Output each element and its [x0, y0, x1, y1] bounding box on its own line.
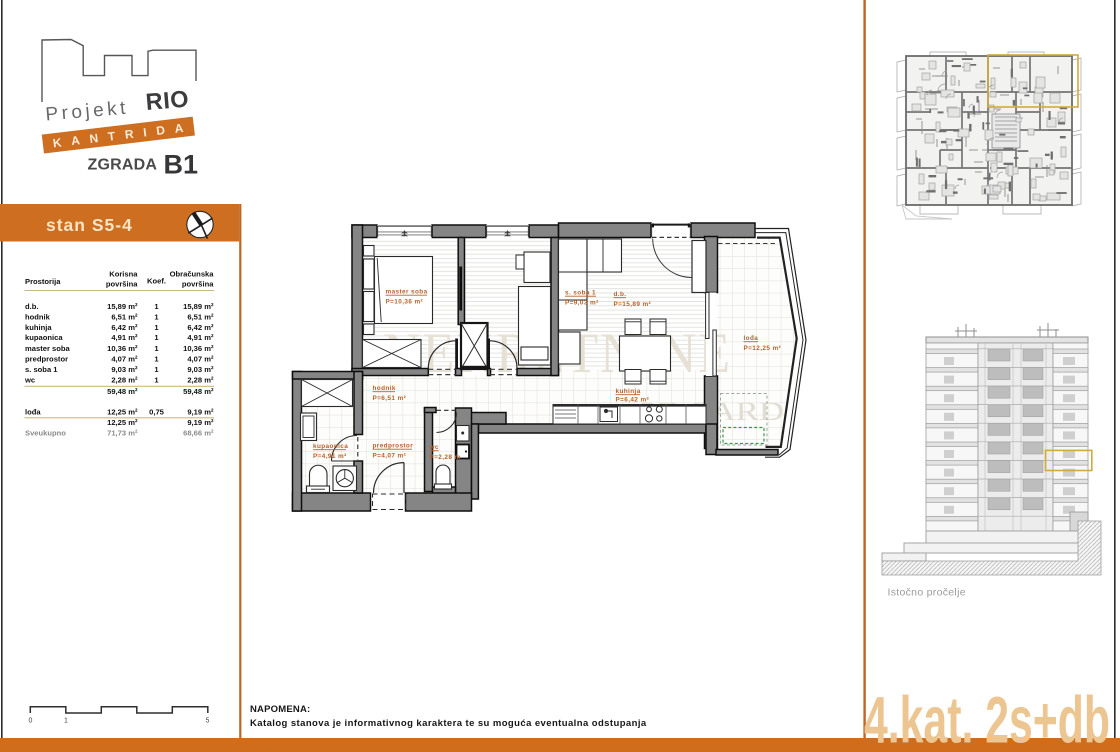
svg-text:predprostor: predprostor [25, 355, 68, 364]
svg-text:B1: B1 [164, 150, 199, 180]
svg-text:6,42 m²: 6,42 m² [111, 323, 138, 332]
svg-text:P=4,91 m²: P=4,91 m² [313, 453, 347, 460]
svg-text:59,48 m²: 59,48 m² [183, 387, 214, 396]
svg-text:Prostorija: Prostorija [25, 277, 61, 286]
svg-text:P=6,42 m²: P=6,42 m² [616, 397, 650, 404]
svg-text:lođa: lođa [25, 407, 41, 416]
svg-text:4,91 m²: 4,91 m² [111, 333, 138, 342]
svg-text:površina: površina [106, 280, 138, 289]
svg-text:master soba: master soba [386, 289, 428, 296]
svg-text:4,07 m²: 4,07 m² [111, 355, 138, 364]
svg-text:5: 5 [206, 718, 210, 725]
svg-text:10,36 m²: 10,36 m² [107, 344, 138, 353]
svg-text:2,28 m²: 2,28 m² [111, 376, 138, 385]
svg-text:12,25 m²: 12,25 m² [107, 418, 138, 427]
svg-text:12,25 m²: 12,25 m² [107, 407, 138, 416]
svg-text:9,19 m²: 9,19 m² [187, 407, 214, 416]
svg-text:hodnik: hodnik [373, 385, 396, 392]
svg-text:stan S5-4: stan S5-4 [46, 215, 133, 235]
svg-text:15,89 m²: 15,89 m² [183, 302, 214, 311]
svg-text:1: 1 [154, 312, 159, 321]
svg-text:4,91 m²: 4,91 m² [187, 333, 214, 342]
svg-text:Istočno pročelje: Istočno pročelje [888, 587, 966, 599]
svg-text:1: 1 [64, 718, 68, 725]
svg-text:4.kat. 2s+db: 4.kat. 2s+db [864, 683, 1110, 752]
svg-text:P=10,36 m²: P=10,36 m² [386, 299, 424, 306]
svg-text:predprostor: predprostor [373, 443, 414, 450]
svg-text:wc: wc [429, 444, 439, 451]
svg-text:15,89 m²: 15,89 m² [107, 302, 138, 311]
svg-text:Koef.: Koef. [147, 277, 166, 286]
svg-text:9,03 m²: 9,03 m² [111, 365, 138, 374]
svg-text:6,42 m²: 6,42 m² [187, 323, 214, 332]
svg-text:s. soba 1: s. soba 1 [565, 290, 596, 297]
svg-text:master soba: master soba [25, 344, 71, 353]
svg-text:1: 1 [154, 365, 159, 374]
svg-text:9,19 m²: 9,19 m² [187, 418, 214, 427]
svg-text:6,51 m²: 6,51 m² [111, 312, 138, 321]
svg-text:1: 1 [154, 323, 159, 332]
svg-text:NAPOMENA:: NAPOMENA: [250, 704, 310, 715]
svg-text:10,36 m²: 10,36 m² [183, 344, 214, 353]
svg-text:kuhinja: kuhinja [616, 388, 641, 395]
svg-text:d.b.: d.b. [614, 291, 627, 298]
svg-text:1: 1 [154, 302, 159, 311]
svg-text:Projekt: Projekt [45, 98, 130, 126]
svg-text:hodnik: hodnik [25, 312, 51, 321]
svg-text:s. soba 1: s. soba 1 [25, 365, 58, 374]
svg-text:2,28 m²: 2,28 m² [187, 376, 214, 385]
svg-text:0,75: 0,75 [149, 407, 165, 416]
svg-text:Korisna: Korisna [109, 270, 138, 279]
svg-text:4,07 m²: 4,07 m² [187, 355, 214, 364]
svg-text:kupaonica: kupaonica [25, 333, 63, 342]
svg-text:wc: wc [24, 376, 35, 385]
svg-text:Obračunska: Obračunska [170, 270, 215, 279]
svg-text:Sveukupno: Sveukupno [25, 429, 66, 438]
svg-text:lođa: lođa [744, 335, 759, 342]
svg-text:d.b.: d.b. [25, 302, 39, 311]
svg-text:1: 1 [154, 376, 159, 385]
svg-text:0: 0 [29, 718, 33, 725]
svg-text:71,73 m²: 71,73 m² [107, 429, 138, 438]
svg-text:68,66 m²: 68,66 m² [183, 429, 214, 438]
svg-text:ZGRADA: ZGRADA [88, 157, 158, 174]
svg-text:površina: površina [182, 280, 214, 289]
svg-text:Katalog stanova je informativn: Katalog stanova je informativnog karakte… [250, 718, 647, 729]
svg-text:1: 1 [154, 355, 159, 364]
svg-text:P=9,03 m²: P=9,03 m² [565, 300, 599, 307]
svg-text:1: 1 [154, 333, 159, 342]
svg-text:RIO: RIO [145, 86, 190, 116]
svg-text:1: 1 [154, 344, 159, 353]
svg-text:9,03 m²: 9,03 m² [187, 365, 214, 374]
svg-text:KANTRIDA: KANTRIDA [52, 120, 194, 151]
svg-text:59,48 m²: 59,48 m² [107, 387, 138, 396]
svg-text:P=4,07 m²: P=4,07 m² [373, 453, 407, 460]
svg-text:P=2,28 m: P=2,28 m [430, 454, 461, 461]
svg-text:P=12,25 m²: P=12,25 m² [744, 345, 782, 352]
svg-text:kupaonica: kupaonica [313, 443, 348, 450]
svg-text:kuhinja: kuhinja [25, 323, 52, 332]
svg-text:P=6,51 m²: P=6,51 m² [373, 395, 407, 402]
svg-text:6,51 m²: 6,51 m² [187, 312, 214, 321]
svg-text:P=15,89 m²: P=15,89 m² [614, 301, 652, 308]
